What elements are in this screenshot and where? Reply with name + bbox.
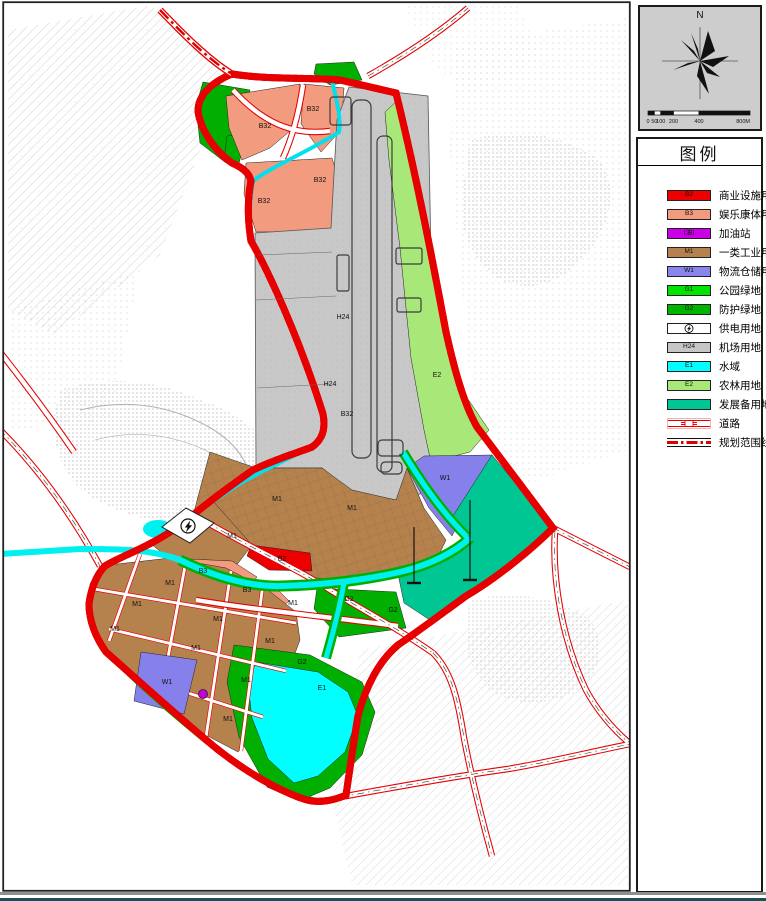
zone-label: B32 — [307, 106, 320, 113]
scale-tick-label: 200 — [669, 119, 678, 125]
legend-panel: 图例 B2商业设施用地B3娱乐康体用地(油)加油站M1一类工业用地W1物流仓储用… — [636, 137, 763, 893]
zone-label: M1 — [265, 638, 275, 645]
legend-code: E1 — [685, 363, 693, 370]
scale-tick-label: 400 — [694, 119, 703, 125]
legend-item: 道路 — [638, 414, 761, 433]
legend-swatch-color: B2 — [667, 190, 711, 201]
legend-header: 图例 — [638, 139, 761, 166]
zone-label: M1 — [272, 496, 282, 503]
scale-tick-label: 800M — [736, 119, 750, 125]
legend-item: 规划范围线 — [638, 433, 761, 452]
zone-label: B3 — [199, 568, 208, 575]
legend-swatch-color — [667, 399, 711, 410]
legend-label: 道路 — [719, 416, 740, 431]
legend-label: 发展备用地 — [719, 397, 766, 412]
legend-code: B3 — [685, 211, 693, 218]
zone-label: M1 — [288, 600, 298, 607]
zone-b32 — [244, 158, 345, 232]
legend-label: 供电用地 — [719, 321, 761, 336]
legend-item: 供电用地 — [638, 319, 761, 338]
legend-label: 防护绿地 — [719, 302, 761, 317]
sheet-edge — [0, 898, 766, 901]
legend-swatch-color: G2 — [667, 304, 711, 315]
legend-item: 发展备用地 — [638, 395, 761, 414]
scale-segment — [648, 111, 654, 115]
legend-item: B3娱乐康体用地 — [638, 205, 761, 224]
zone-label: M1 — [132, 601, 142, 608]
legend-swatch-color: W1 — [667, 266, 711, 277]
legend-swatch-color: E1 — [667, 361, 711, 372]
zone-label: B32 — [314, 177, 327, 184]
zone-label: W1 — [162, 679, 173, 686]
compass-rose-icon — [640, 17, 760, 99]
zone-label: B32 — [258, 198, 271, 205]
scale-segment — [674, 111, 700, 115]
legend-label: 物流仓储用地 — [719, 264, 766, 279]
legend-code: (油) — [684, 230, 695, 237]
zone-label: M1 — [191, 645, 201, 652]
zone-label: E1 — [318, 685, 327, 692]
legend-code: E2 — [685, 382, 693, 389]
legend-swatch-color: B3 — [667, 209, 711, 220]
scale-segment — [699, 111, 750, 115]
legend-label: 农林用地 — [719, 378, 761, 393]
legend-label: 商业设施用地 — [719, 188, 766, 203]
legend-item: E1水域 — [638, 357, 761, 376]
zone-label: G2 — [344, 596, 353, 603]
legend-code: G2 — [685, 306, 694, 313]
legend-swatch-road — [667, 418, 711, 429]
zone-label: H24 — [324, 381, 337, 388]
legend-rows: B2商业设施用地B3娱乐康体用地(油)加油站M1一类工业用地W1物流仓储用地G1… — [638, 166, 761, 452]
scale-segment — [661, 111, 674, 115]
legend-label: 机场用地 — [719, 340, 761, 355]
legend-label: 水域 — [719, 359, 740, 374]
zone-label: G2 — [297, 659, 306, 666]
legend-code: M1 — [684, 249, 693, 256]
zone-label: B32 — [341, 411, 354, 418]
legend-item: B2商业设施用地 — [638, 186, 761, 205]
zone-label: B2 — [278, 556, 287, 563]
legend-swatch-color: G1 — [667, 285, 711, 296]
legend-item: H24机场用地 — [638, 338, 761, 357]
legend-swatch-color: M1 — [667, 247, 711, 258]
zone-label: W1 — [440, 475, 451, 482]
legend-swatch-color: (油) — [667, 228, 711, 239]
zone-label: M1 — [223, 716, 233, 723]
legend-item: W1物流仓储用地 — [638, 262, 761, 281]
scale-segment — [654, 111, 660, 115]
legend-label: 一类工业用地 — [719, 245, 766, 260]
legend-label: 规划范围线 — [719, 435, 766, 450]
legend-code: B2 — [685, 192, 693, 199]
legend-label: 公园绿地 — [719, 283, 761, 298]
legend-swatch-power — [667, 323, 711, 334]
legend-item: (油)加油站 — [638, 224, 761, 243]
zone-label: M1 — [110, 626, 120, 633]
zone-label: M1 — [213, 616, 223, 623]
legend-label: 娱乐康体用地 — [719, 207, 766, 222]
gas-station-icon — [199, 690, 208, 699]
zone-label: M1 — [227, 533, 237, 540]
legend-label: 加油站 — [719, 226, 751, 241]
zone-label: H24 — [337, 314, 350, 321]
legend-code: G1 — [685, 287, 694, 294]
legend-item: M1一类工业用地 — [638, 243, 761, 262]
north-panel: N 050100200400800M — [638, 5, 762, 131]
zone-label: E2 — [433, 372, 442, 379]
zone-label: M1 — [347, 505, 357, 512]
legend-item: G1公园绿地 — [638, 281, 761, 300]
zone-label: B32 — [259, 123, 272, 130]
plan-sheet: B32B32B32B32B32H24H24E2W1W1M1M1M1M1M1M1M… — [0, 0, 766, 901]
legend-code: H24 — [683, 344, 695, 351]
legend-swatch-color: H24 — [667, 342, 711, 353]
scale-tick-label: 0 — [646, 119, 649, 125]
zone-label: G2 — [388, 607, 397, 614]
sheet-divider — [0, 892, 766, 895]
legend-item: E2农林用地 — [638, 376, 761, 395]
zone-label: M1 — [165, 580, 175, 587]
legend-item: G2防护绿地 — [638, 300, 761, 319]
zone-label: M1 — [241, 677, 251, 684]
scale-tick-label: 100 — [656, 119, 665, 125]
zone-label: B3 — [243, 587, 252, 594]
legend-code: W1 — [684, 268, 694, 275]
legend-swatch-boundary — [667, 437, 711, 448]
legend-title: 图例 — [680, 140, 720, 165]
legend-swatch-color: E2 — [667, 380, 711, 391]
scale-bar: 050100200400800M — [644, 109, 756, 127]
